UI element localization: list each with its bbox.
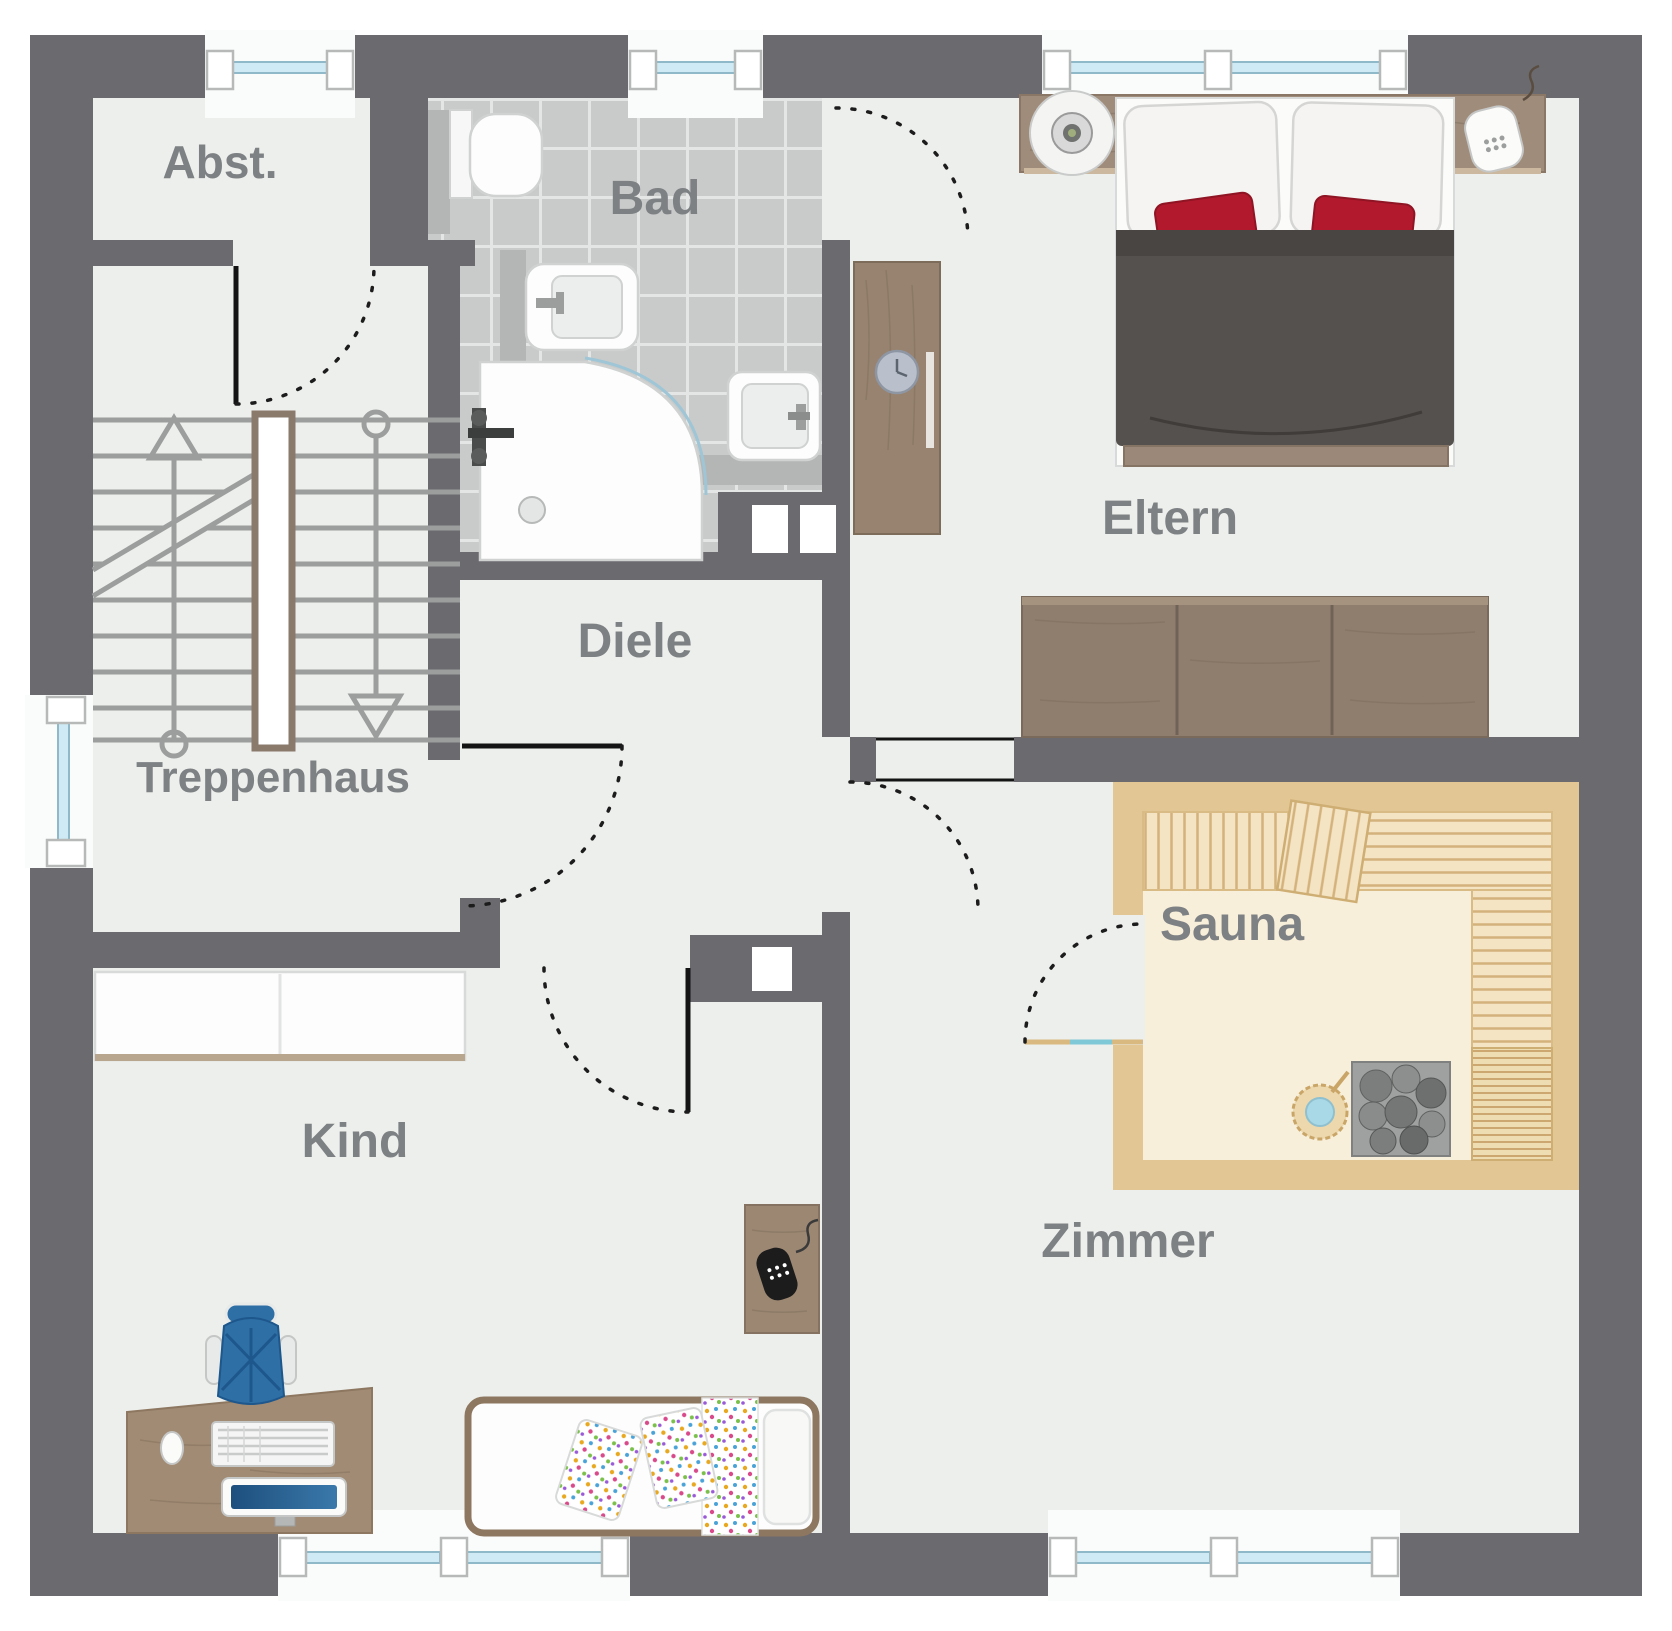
- exterior-wall-bottom: [30, 1533, 1642, 1596]
- opening-eltern-zimmer: [876, 737, 1014, 782]
- window: [1048, 1510, 1400, 1601]
- room-label-kind: Kind: [302, 1115, 409, 1168]
- sauna-heater-icon: [1352, 1062, 1450, 1156]
- room-label-abst: Abst.: [163, 136, 278, 188]
- stair-divider: [255, 414, 292, 748]
- drain: [519, 497, 545, 523]
- duct: [752, 505, 788, 553]
- sauna-bench: [1472, 1048, 1552, 1160]
- room-label-bad: Bad: [610, 172, 701, 225]
- window: [25, 695, 93, 868]
- nightstand: [745, 1205, 819, 1333]
- toilet-icon: [450, 110, 542, 198]
- clock-icon: [876, 351, 918, 393]
- wall-band-right: [1014, 737, 1579, 782]
- room-label-zimmer: Zimmer: [1041, 1215, 1214, 1268]
- wall-abst-cap: [370, 240, 475, 266]
- white-pillow: [764, 1410, 810, 1524]
- wall-abst-bottom: [93, 240, 233, 266]
- wall-band-left: [850, 737, 876, 782]
- closet-base: [95, 1054, 465, 1061]
- wardrobe-handle: [926, 352, 934, 448]
- exterior-wall-right: [1579, 35, 1642, 1596]
- double-bed: [1116, 98, 1454, 466]
- bidet-icon: [526, 264, 638, 350]
- sauna-backrest: [1277, 801, 1370, 902]
- closet: [95, 972, 465, 1061]
- duvet-fold: [1116, 230, 1454, 256]
- sink-icon: [728, 372, 820, 460]
- duct: [752, 947, 792, 991]
- window: [628, 30, 763, 118]
- duvet: [1116, 230, 1454, 446]
- sideboard: [1022, 597, 1488, 737]
- wall-stair-bad: [428, 266, 460, 760]
- floor-plan-page: Abst. Bad Eltern Treppenhaus Diele Sauna…: [0, 0, 1672, 1631]
- single-bed: [468, 1398, 816, 1535]
- bed-footboard: [1124, 446, 1448, 466]
- sideboard-top-edge: [1022, 597, 1488, 605]
- installation-wall: [428, 110, 450, 234]
- window: [205, 30, 355, 118]
- wardrobe: [854, 262, 940, 534]
- mouse-icon: [161, 1432, 183, 1464]
- sauna-door-gap: [1108, 915, 1145, 1045]
- wall-diele-eltern: [822, 580, 850, 737]
- installation-wall: [500, 250, 526, 372]
- room-label-diele: Diele: [578, 615, 693, 668]
- room-label-sauna: Sauna: [1160, 898, 1304, 951]
- room-sauna: [1108, 780, 1584, 1190]
- room-label-treppenhaus: Treppenhaus: [136, 753, 410, 802]
- wall-bad-eltern-upper: [822, 240, 850, 492]
- wall-zimmer-stub: [822, 912, 850, 935]
- floor-plan: Abst. Bad Eltern Treppenhaus Diele Sauna…: [0, 0, 1672, 1631]
- wall-treppenhaus-kind: [93, 932, 500, 968]
- wall-kind-zimmer: [822, 1002, 850, 1533]
- desk: [127, 1388, 372, 1533]
- duct: [800, 505, 836, 553]
- room-label-eltern: Eltern: [1102, 492, 1238, 545]
- wall-abst-right: [370, 98, 428, 240]
- keyboard-icon: [212, 1422, 334, 1466]
- bedside-lamp-icon: [1030, 91, 1114, 175]
- wall-kind-stub: [460, 898, 500, 932]
